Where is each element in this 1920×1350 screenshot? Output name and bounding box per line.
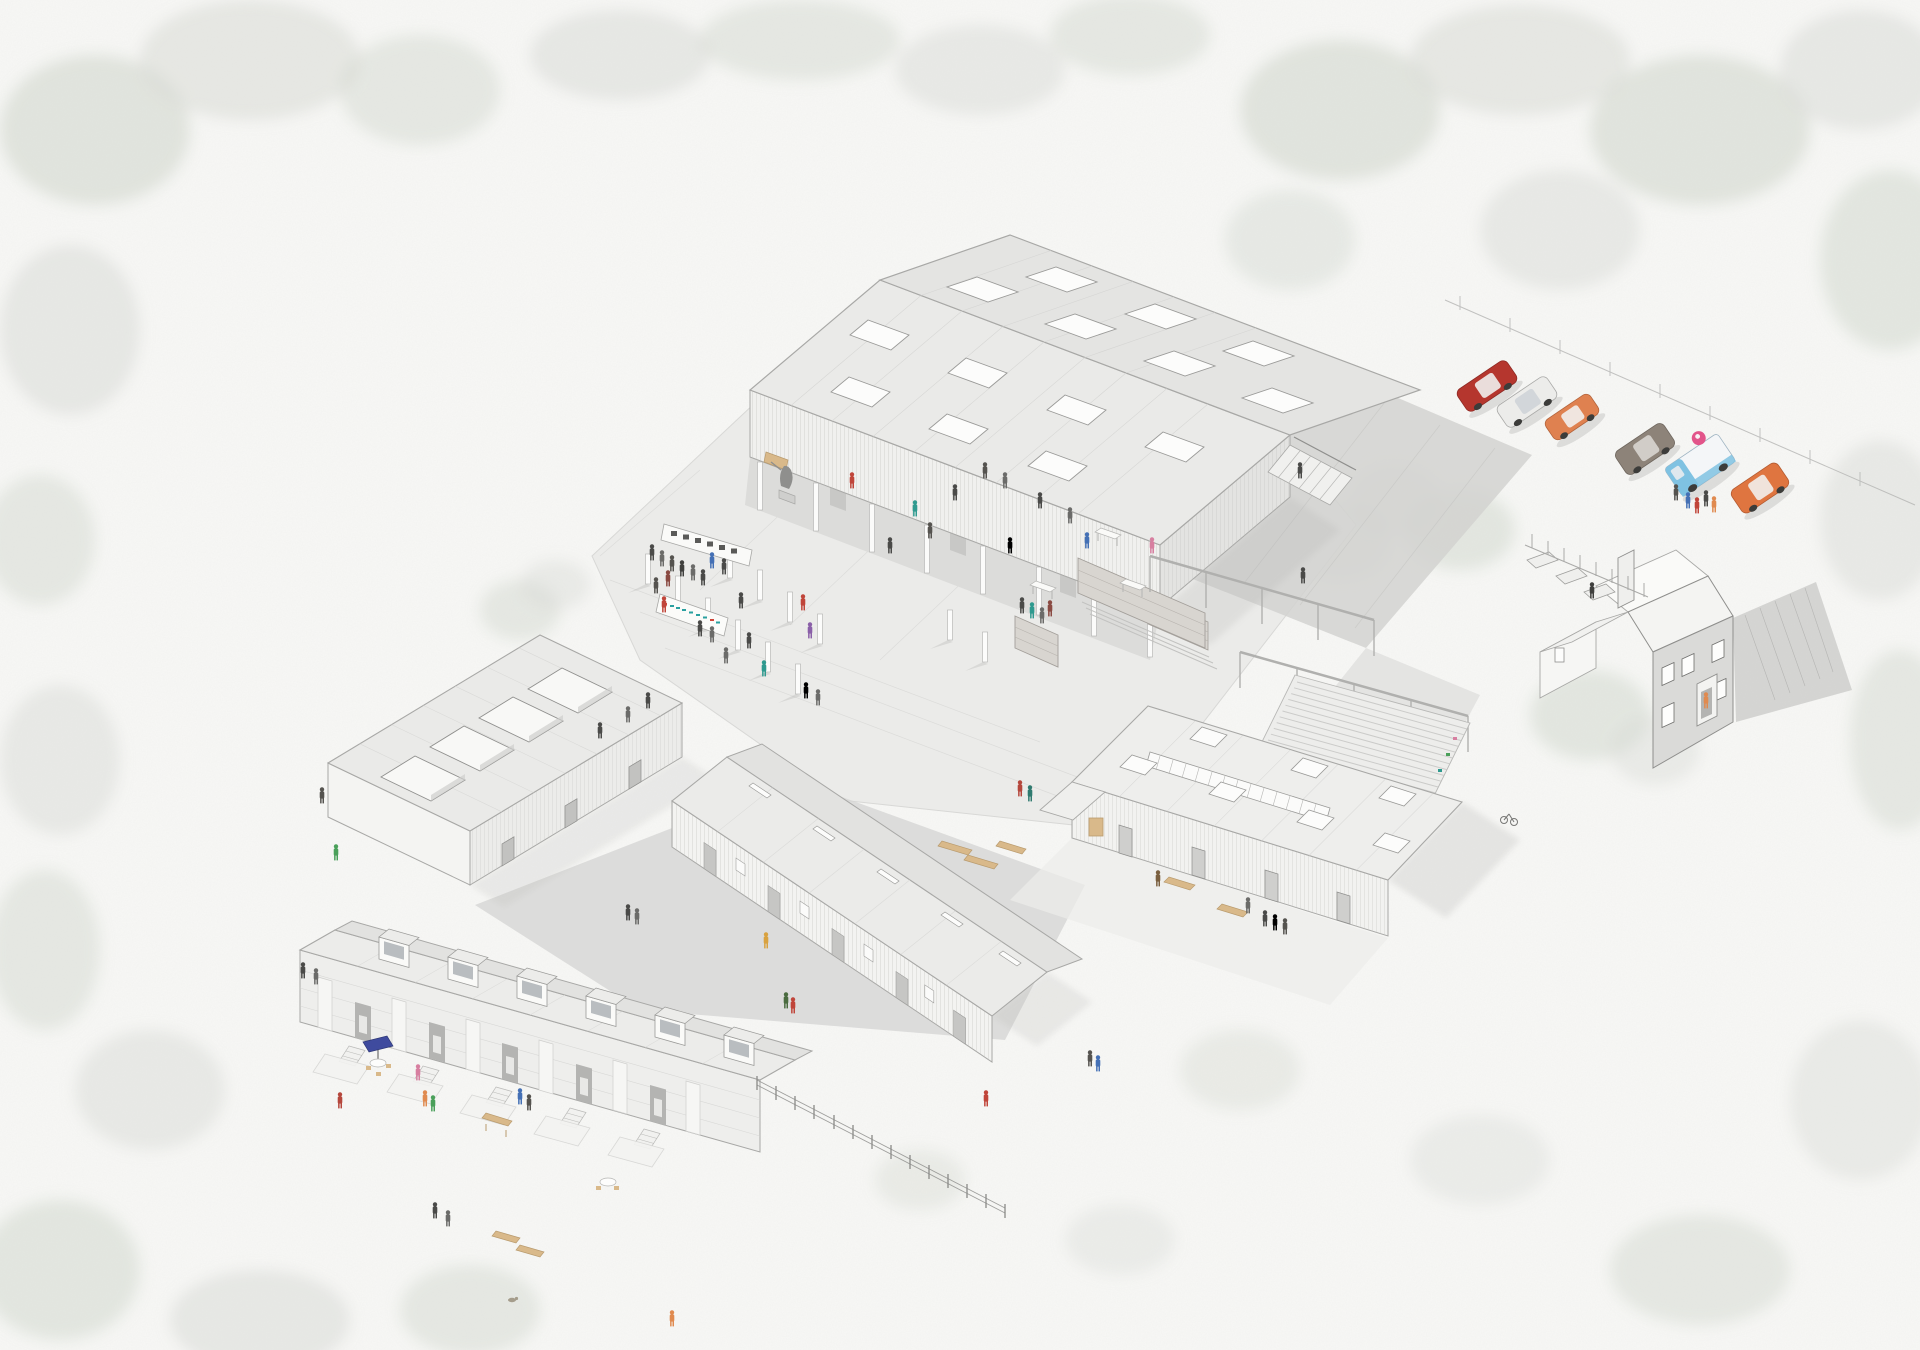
farmhouse-left-window	[1555, 648, 1564, 662]
farmhouse-chimney	[1618, 550, 1634, 608]
maker-kiosk	[1089, 818, 1103, 836]
axonometric-illustration	[0, 0, 1920, 1350]
illustration-canvas	[0, 0, 1920, 1350]
